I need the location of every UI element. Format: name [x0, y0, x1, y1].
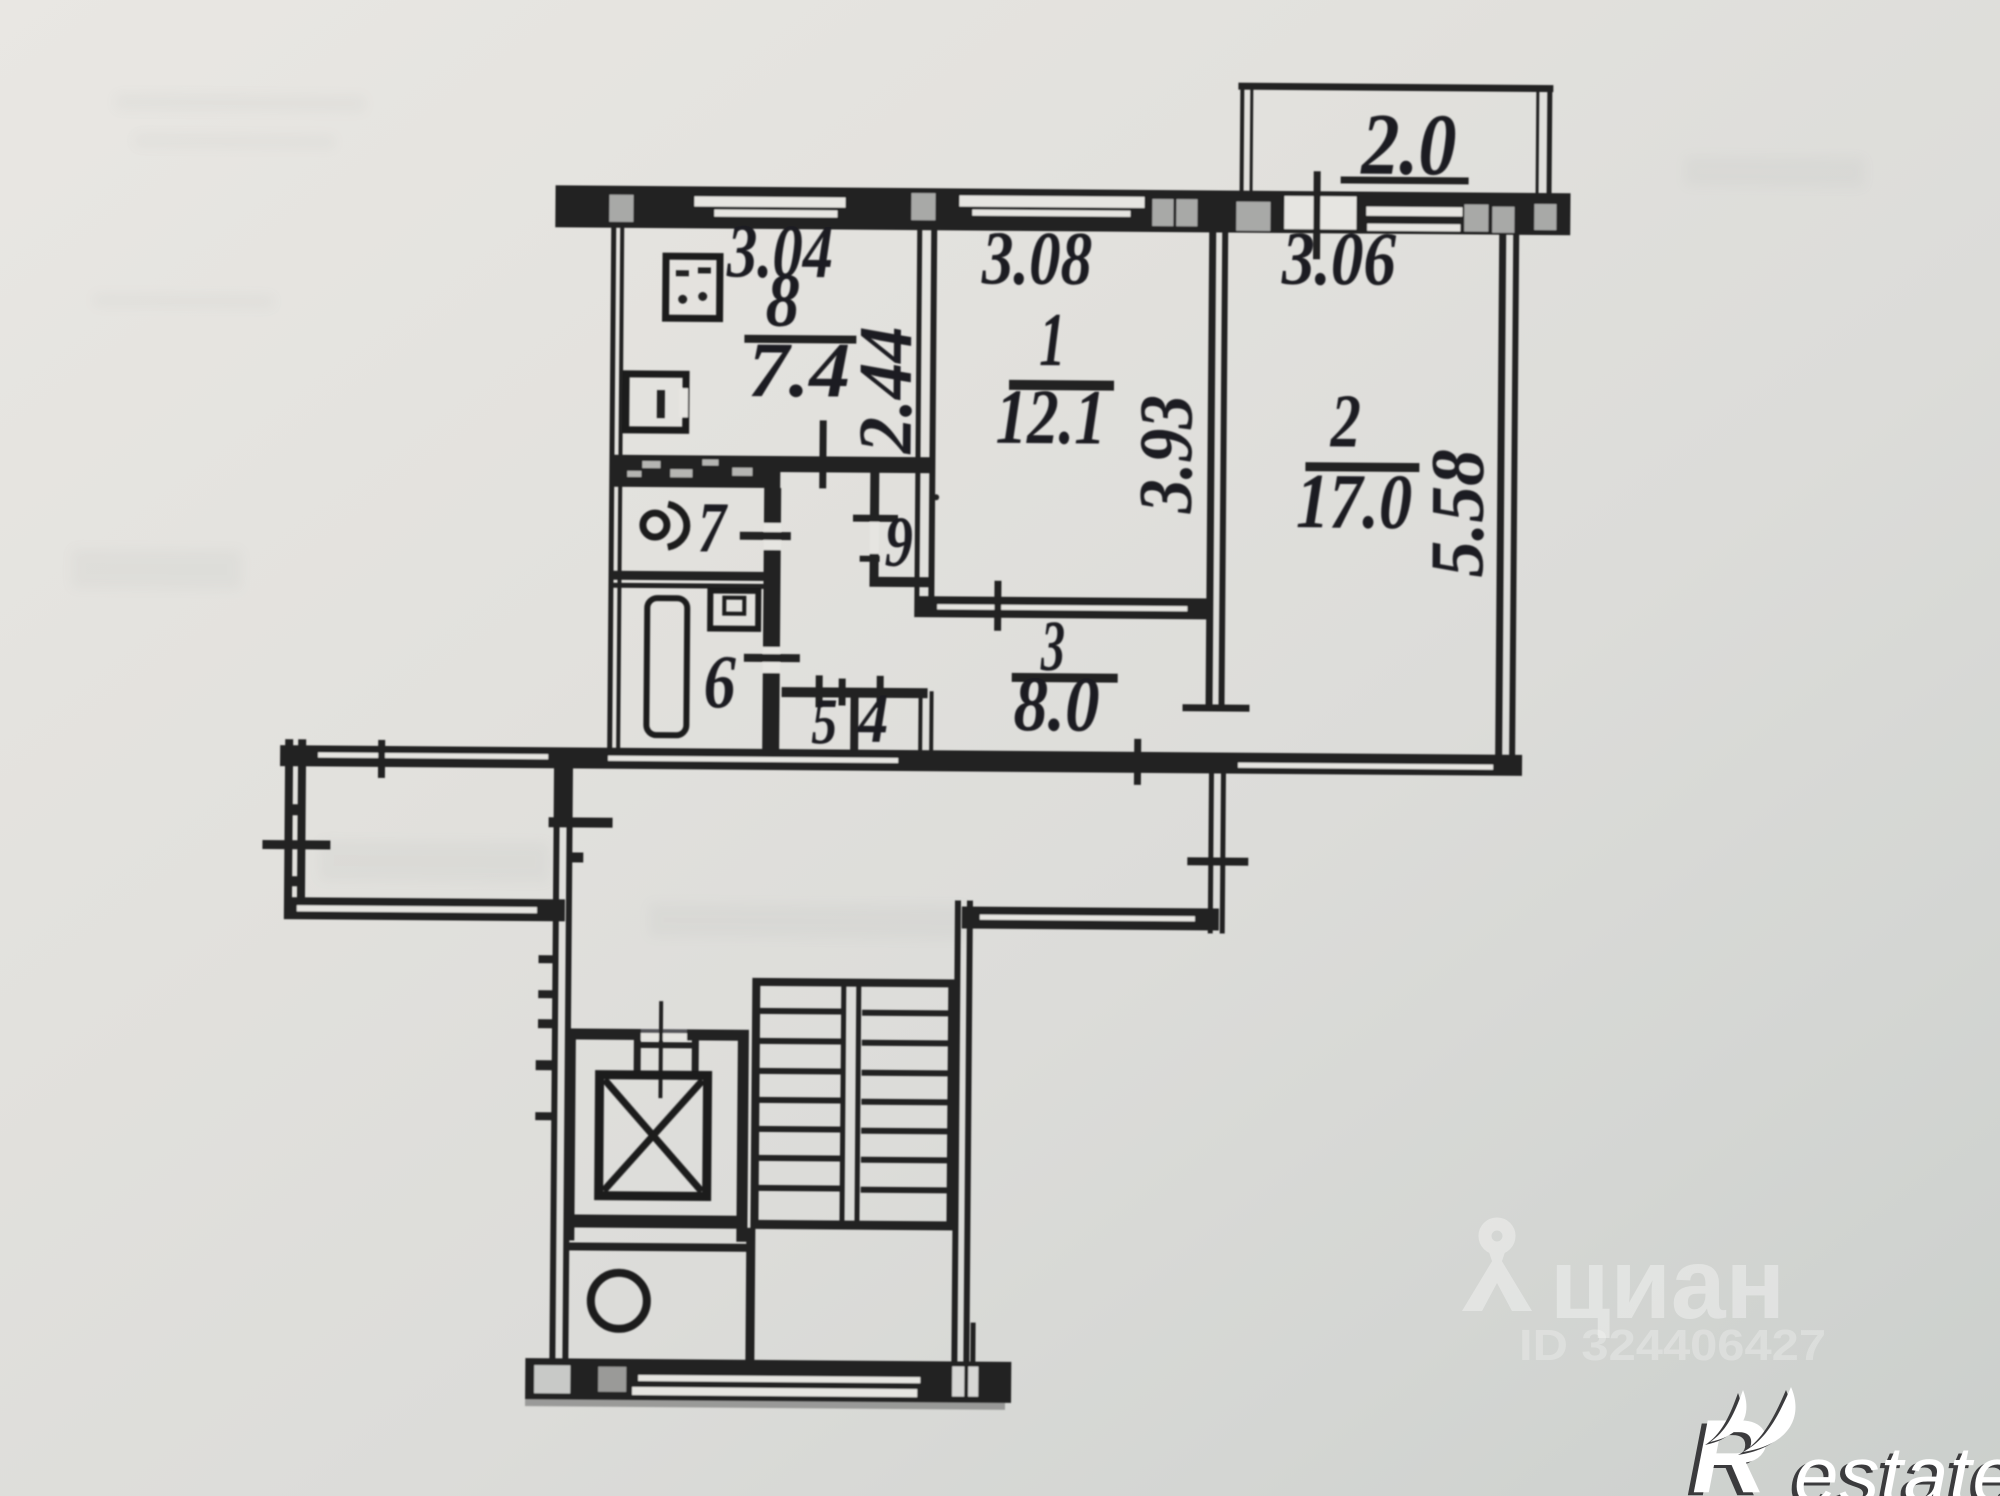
svg-text:6: 6 — [703, 640, 736, 724]
svg-text:4: 4 — [856, 681, 888, 758]
svg-text:3.08: 3.08 — [981, 217, 1092, 302]
svg-text:2: 2 — [1330, 379, 1361, 463]
svg-text:2.44: 2.44 — [843, 326, 928, 455]
svg-text:7.4: 7.4 — [748, 326, 851, 414]
svg-text:8.0: 8.0 — [1013, 660, 1100, 748]
svg-text:12.1: 12.1 — [995, 373, 1106, 461]
svg-text:5: 5 — [811, 685, 838, 758]
svg-text:ID 324406427: ID 324406427 — [1519, 1321, 1826, 1370]
svg-text:3.93: 3.93 — [1124, 395, 1209, 515]
svg-text:estate: estate — [1794, 1430, 2000, 1496]
svg-text:3.06: 3.06 — [1281, 217, 1397, 302]
svg-text:17.0: 17.0 — [1296, 457, 1413, 545]
svg-text:7: 7 — [698, 487, 729, 567]
svg-text:5.58: 5.58 — [1416, 449, 1501, 578]
svg-text:1: 1 — [1039, 298, 1066, 382]
svg-text:9: 9 — [884, 502, 913, 582]
